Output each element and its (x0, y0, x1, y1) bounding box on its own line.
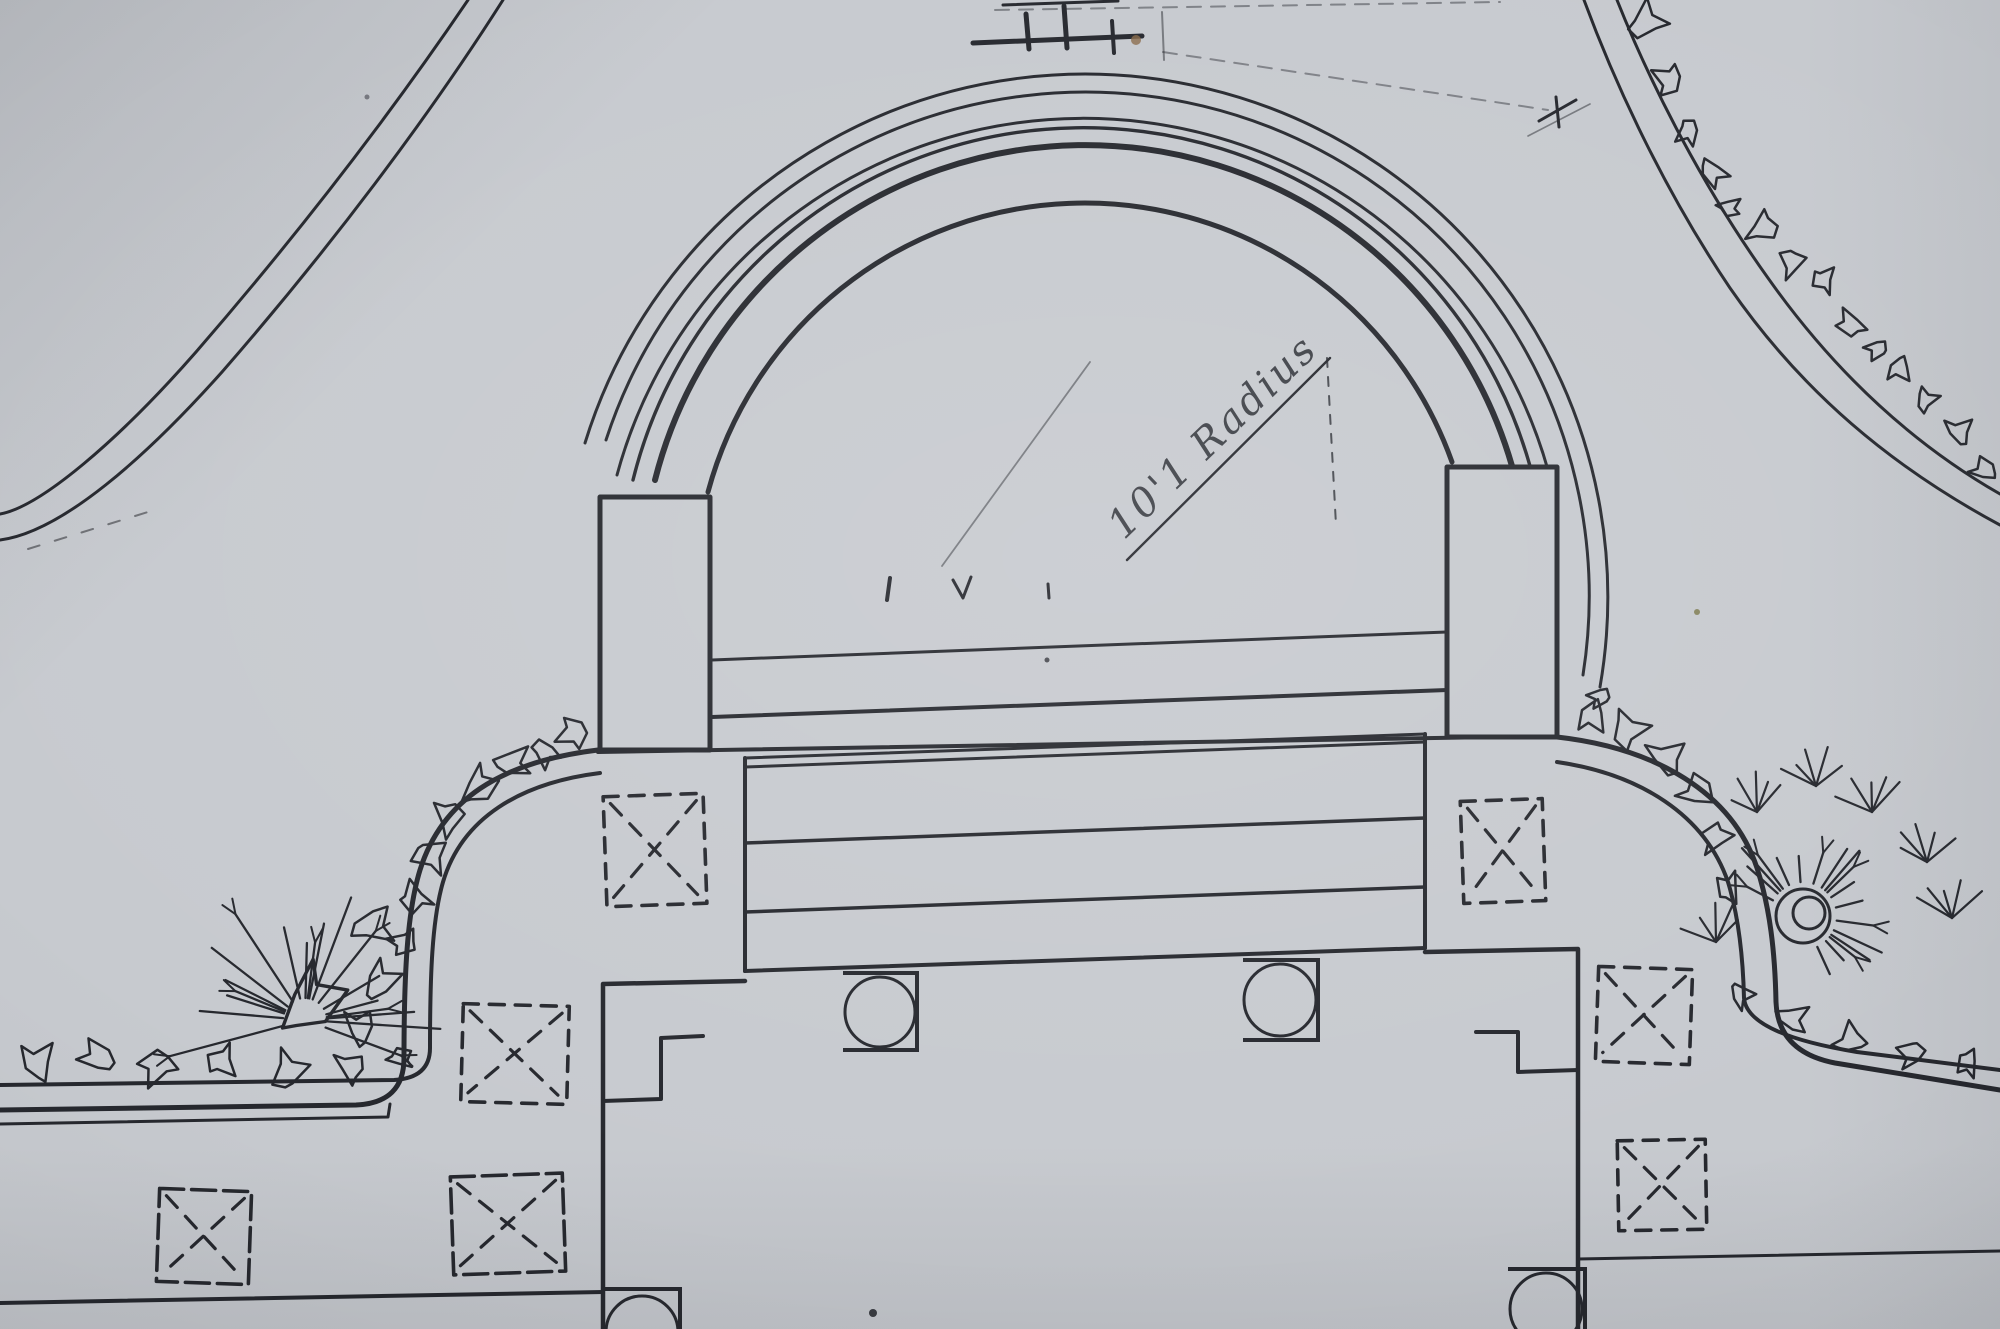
branch-stroke (1822, 837, 1823, 853)
branch-stroke (1716, 906, 1732, 943)
branch-stroke (1871, 783, 1872, 813)
branch-stroke (1836, 901, 1863, 908)
branch-stroke (1817, 947, 1830, 974)
column-right (1243, 960, 1318, 1040)
branch-stroke (1757, 782, 1768, 812)
boulder (1958, 1049, 1975, 1079)
branch-stroke (1872, 777, 1886, 812)
branch-stroke (326, 1028, 401, 1056)
branch-stroke (324, 976, 379, 1009)
stage-front-edge (598, 736, 1557, 752)
planter-bottom-left-1 (156, 1188, 251, 1284)
branch-stroke (311, 927, 315, 943)
boulder (208, 1043, 236, 1077)
branch-stroke (1757, 785, 1780, 812)
planter-lower-left (461, 1004, 570, 1105)
column-bottom-right (1508, 1269, 1585, 1329)
drawing-layer (0, 0, 2000, 1329)
left-curved-wall-outer (0, 750, 598, 1110)
boulder (76, 1038, 114, 1069)
stage-step-line-2 (712, 690, 1447, 717)
branch-stroke (1872, 782, 1900, 812)
branch-stroke (1873, 922, 1889, 926)
top-mark-tick-1 (1026, 14, 1029, 49)
column-left (843, 973, 917, 1050)
branch-stroke (1827, 867, 1853, 892)
column-circle (606, 1296, 678, 1329)
branch-stroke (200, 1011, 283, 1018)
top-construction-tick (1162, 12, 1164, 60)
boulder (1780, 251, 1807, 280)
rocks-left-curve (386, 718, 587, 955)
column-circle (845, 977, 915, 1047)
boulder (367, 958, 403, 999)
terrace-bottom-edge (745, 948, 1425, 971)
topright-cross-mark-2 (1556, 97, 1559, 127)
terrace-step-line-2 (745, 818, 1425, 843)
column-footing-square (1508, 1269, 1585, 1329)
boulder (1701, 823, 1735, 855)
boulder (1919, 387, 1941, 414)
branch-stroke (1715, 903, 1716, 942)
boulder (1888, 356, 1910, 381)
site-plan-drawing: 10'1 Radius (0, 0, 2000, 1329)
branch-stroke (1826, 941, 1844, 960)
boulder (555, 718, 587, 749)
amphitheater-arc-5 (655, 145, 1512, 480)
swale-curve-inner (0, 0, 503, 540)
branch-stroke (157, 1056, 170, 1066)
boulder (1813, 267, 1834, 295)
planter-upper-right (1460, 799, 1546, 904)
amphitheater-arc-6 (708, 203, 1452, 492)
site-plan-photo: 10'1 Radius (0, 0, 2000, 1329)
right-pillar (1447, 467, 1557, 737)
branch-stroke (226, 980, 286, 1010)
branch-stroke (154, 1054, 170, 1056)
stage-tick-2 (1048, 584, 1049, 598)
brown-smudge (1131, 35, 1141, 45)
column-circle (1510, 1273, 1582, 1329)
boulder (1836, 308, 1868, 337)
boulder (1968, 456, 1995, 478)
planter-bottom-left-2 (450, 1173, 565, 1275)
right-wall-notch (1476, 1032, 1578, 1072)
column-circle (1244, 964, 1316, 1036)
top-mark-tick-2 (1064, 6, 1067, 48)
bottom-line-right (1578, 1251, 2000, 1259)
branch-stroke (1799, 856, 1801, 882)
planter-mid-right (1595, 966, 1692, 1064)
branch-stroke (1756, 772, 1757, 812)
planter-x-mark (468, 1011, 562, 1095)
planter-x-mark (610, 801, 699, 898)
stage-step-line-1 (712, 632, 1447, 660)
rocks-topright-chain (1628, 0, 1995, 478)
planter-upper-left (603, 793, 707, 906)
boulder (1651, 64, 1680, 95)
planter-lower-right (1617, 1139, 1707, 1231)
planter-x-mark (458, 1180, 559, 1265)
boulder (1579, 699, 1604, 732)
branch-stroke (1716, 920, 1738, 942)
right-curved-wall-outer (1557, 737, 2000, 1090)
branch-stroke (170, 1026, 284, 1057)
bottom-line-left (0, 1292, 603, 1303)
branch-stroke (1837, 921, 1874, 926)
swale-curve-outer (0, 0, 468, 514)
amphitheater-arc-3 (617, 118, 1548, 475)
boulder (1832, 1020, 1868, 1050)
shrub-center-circle (1793, 897, 1825, 929)
topright-path-outer (1617, 0, 2000, 494)
branch-stroke (1873, 926, 1887, 934)
radius-annotation: 10'1 Radius (1099, 325, 1327, 547)
boulder (1863, 342, 1886, 362)
left-pillar (600, 497, 710, 750)
right-stepped-wall (1425, 949, 1578, 1329)
boulder (1628, 0, 1670, 38)
boulder (21, 1043, 52, 1082)
top-mark-dash (1003, 1, 1118, 5)
boulder (1944, 420, 1972, 445)
shrub-left (154, 898, 440, 1067)
boulder (1675, 121, 1697, 147)
topright-path-inner (1584, 0, 2000, 525)
column-bottom-left (604, 1289, 680, 1329)
shrub-right (1681, 747, 1982, 974)
ink-dot (869, 1309, 877, 1317)
column-footing-square (843, 973, 917, 1050)
left-stepped-wall (603, 981, 745, 1329)
column-footing-square (1243, 960, 1318, 1040)
branch-stroke (327, 1021, 440, 1029)
left-wall-notch (603, 1036, 703, 1101)
branch-stroke (1777, 858, 1789, 885)
top-mark-bar (973, 36, 1142, 43)
olive-speck (1694, 609, 1700, 615)
terrace-step-line-3 (745, 887, 1425, 912)
top-construction-dash-b (1163, 52, 1548, 110)
branch-stroke (1747, 887, 1773, 901)
stage-tick-1 (887, 578, 890, 600)
ink-speck (1045, 658, 1050, 663)
top-mark-tick-3 (1112, 21, 1114, 53)
branch-stroke (1813, 853, 1823, 884)
swale-curve-dash (28, 512, 148, 549)
branch-stroke (1823, 840, 1833, 852)
radius-construction-line (942, 362, 1090, 566)
paper-speck (365, 95, 370, 100)
branch-stroke (388, 1001, 402, 1009)
boulder (1745, 209, 1778, 239)
stage-v-mark (953, 577, 971, 598)
radius-extension-dash (1327, 358, 1336, 525)
